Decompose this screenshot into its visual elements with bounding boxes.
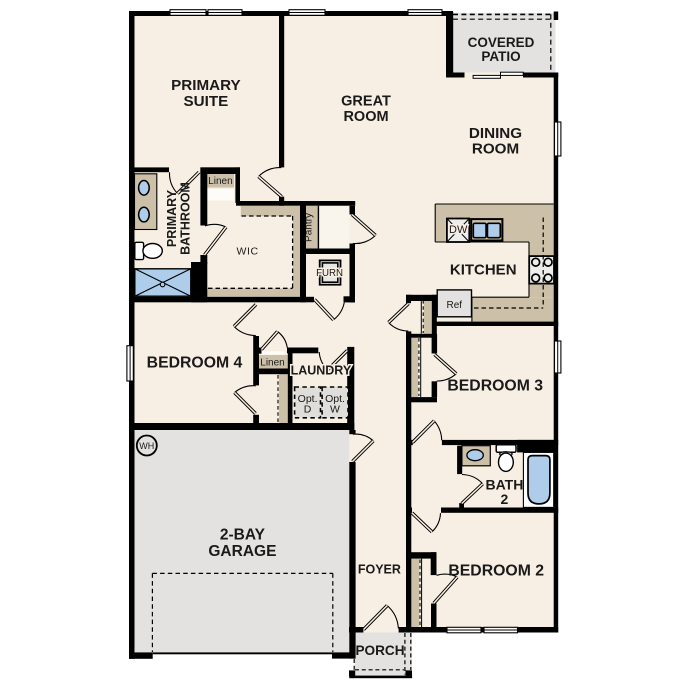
svg-text:FOYER: FOYER [358,562,401,576]
svg-text:PORCH: PORCH [355,643,404,658]
svg-text:BEDROOM 2: BEDROOM 2 [448,563,544,580]
svg-text:GREAT: GREAT [341,93,391,109]
svg-text:DW: DW [449,224,468,236]
svg-text:PATIO: PATIO [481,49,520,64]
svg-text:KITCHEN: KITCHEN [450,261,517,278]
svg-text:BEDROOM 3: BEDROOM 3 [447,378,543,395]
svg-text:WIC: WIC [236,246,258,258]
svg-text:COVERED: COVERED [468,35,535,50]
svg-text:Pantry: Pantry [304,213,315,242]
svg-text:Ref: Ref [447,300,463,311]
svg-text:BEDROOM 4: BEDROOM 4 [147,355,243,372]
svg-text:DINING: DINING [469,125,522,142]
svg-text:Linen: Linen [260,357,284,368]
svg-text:GARAGE: GARAGE [208,543,276,560]
svg-text:WH: WH [139,441,154,451]
svg-text:Linen: Linen [208,176,232,187]
svg-text:ROOM: ROOM [472,141,519,158]
svg-text:FURN: FURN [316,268,343,279]
svg-text:2-BAY: 2-BAY [220,527,266,544]
svg-text:PRIMARY: PRIMARY [171,77,240,94]
svg-text:PRIMARY: PRIMARY [165,189,179,247]
svg-text:SUITE: SUITE [184,93,229,110]
svg-text:BATHROOM: BATHROOM [178,182,192,255]
svg-text:ROOM: ROOM [343,109,388,125]
svg-text:2: 2 [501,491,509,507]
svg-text:LAUNDRY: LAUNDRY [291,363,352,377]
svg-text:D: D [304,403,312,415]
svg-text:W: W [330,403,340,415]
